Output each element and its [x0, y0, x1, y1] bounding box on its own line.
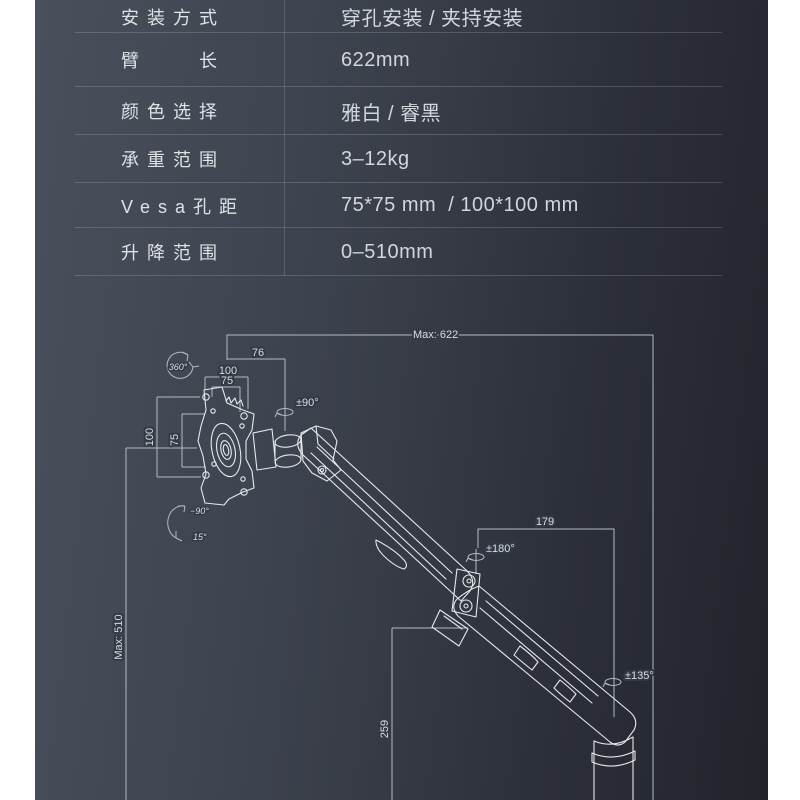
vesa-plate [198, 387, 254, 505]
tilt-range-icon [168, 506, 185, 541]
dim-head-offset: 76 [252, 347, 264, 359]
swivel-90-icon [275, 409, 293, 418]
monitor-arm-artwork [198, 387, 636, 800]
base-135-icon [603, 679, 621, 688]
dim-swivel-90: ±90° [296, 397, 319, 409]
dim-vesa-top-75: 75 [221, 375, 233, 387]
dim-tilt-up: 15° [193, 532, 207, 542]
pole [592, 737, 635, 800]
dim-vesa-side-75: 75 [169, 434, 181, 446]
head-joint [253, 426, 341, 481]
dim-max-lift: Max: 510 [113, 614, 125, 659]
dim-tilt-down: −90° [190, 506, 209, 516]
dim-forearm-179: 179 [536, 516, 554, 528]
dim-rotate-360: 360° [169, 362, 188, 372]
elbow-180-icon [466, 554, 484, 563]
upper-arm [298, 428, 473, 601]
forearm [454, 586, 636, 745]
monitor-arm-technical-diagram: Max: 622 76 100 75 360° ±90° 100 75 −90°… [0, 0, 800, 800]
product-spec-page: { "page": { "background": "#ffffff", "pa… [0, 0, 800, 800]
dim-base-135: ±135° [625, 670, 654, 682]
dim-elbow-180: ±180° [486, 543, 515, 555]
dim-pole-height: 259 [379, 720, 391, 738]
dimension-labels: Max: 622 76 100 75 360° ±90° 100 75 −90°… [113, 329, 654, 738]
dim-max-arm-length: Max: 622 [413, 329, 458, 341]
dim-vesa-side-100: 100 [144, 428, 156, 446]
